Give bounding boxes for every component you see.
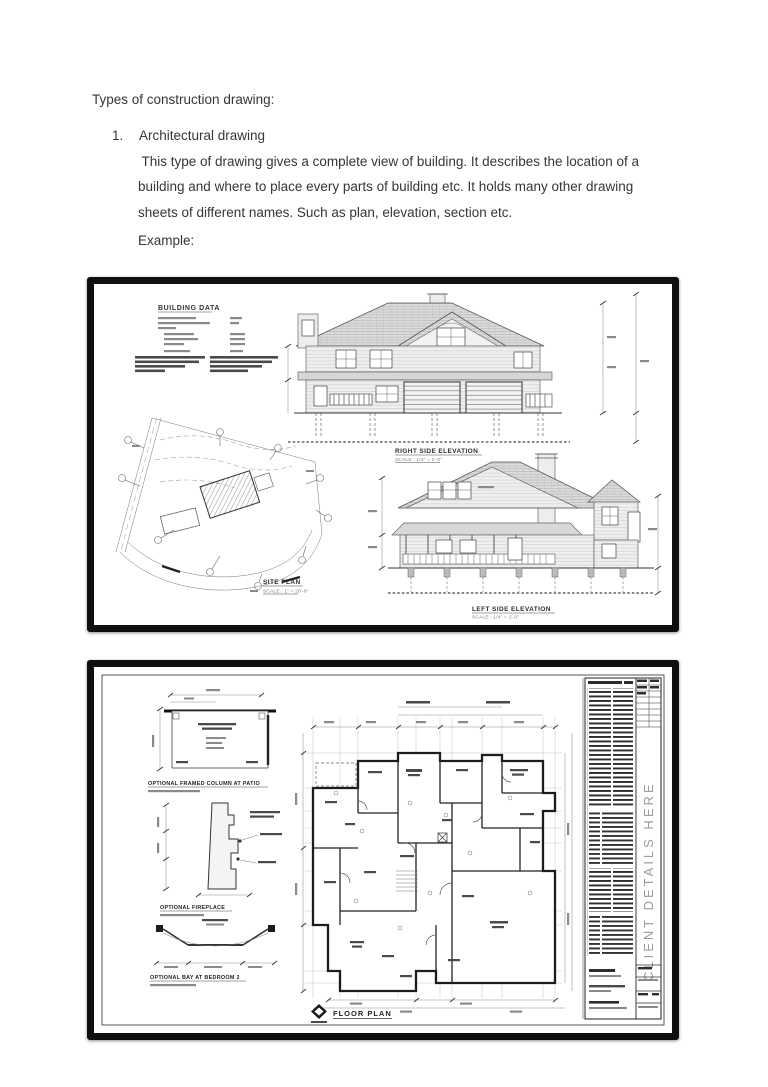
client-details-vertical-text: CLIENT DETAILS HERE <box>641 781 656 981</box>
body-paragraph: This type of drawing gives a complete vi… <box>138 149 678 225</box>
page-title: Types of construction drawing: <box>92 92 274 107</box>
body-line-2: building and where to place every parts … <box>138 174 678 199</box>
fireplace-profile <box>208 803 238 889</box>
porch-door <box>508 538 522 560</box>
floor-plan-figure: OPTIONAL FRAMED COLUMN AT PATIO OPTIONAL… <box>87 660 679 1040</box>
fireplace-detail-label: OPTIONAL FIREPLACE <box>160 905 225 911</box>
bay-window <box>628 512 640 542</box>
list-item-1: 1. Architectural drawing <box>112 128 265 143</box>
body-line-3: sheets of different names. Such as plan,… <box>138 200 678 225</box>
building-data-title: BUILDING DATA <box>158 305 220 312</box>
chimney <box>430 294 445 304</box>
column-detail-drawing: OPTIONAL FRAMED COLUMN AT PATIO <box>148 689 276 792</box>
document-page: { "page": { "heading": "Types of constru… <box>0 0 768 1087</box>
building-footprint <box>200 465 277 518</box>
floor-plan-sheet: OPTIONAL FRAMED COLUMN AT PATIO OPTIONAL… <box>100 673 666 1027</box>
bay-detail-drawing: OPTIONAL BAY AT BEDROOM 2 <box>150 919 277 986</box>
floor-plan-title: FLOOR PLAN <box>311 1004 392 1023</box>
body-line-1: This type of drawing gives a complete vi… <box>138 149 678 174</box>
fireplace-detail-drawing: OPTIONAL FIREPLACE <box>157 803 282 916</box>
entry-door <box>314 386 327 406</box>
porch-roof <box>392 523 582 535</box>
road-centerline <box>121 418 157 552</box>
site-plan-drawing: SITE PLAN SCALE : 1" = 20'-0" <box>116 418 332 595</box>
floor-plan-drawing: FLOOR PLAN <box>295 701 572 1023</box>
left-side-elevation-drawing: LEFT SIDE ELEVATION SCALE : 1/4" = 1'-0" <box>368 454 661 619</box>
right-elevation-scale: SCALE : 1/4" = 1'-0" <box>395 457 442 463</box>
foundation-piers <box>408 568 626 592</box>
left-porch-railing <box>330 394 372 405</box>
site-plan-label: SITE PLAN <box>263 579 301 586</box>
foundation-dashes <box>316 413 543 438</box>
drive-pad <box>160 508 199 534</box>
garage-door-1 <box>404 382 460 413</box>
bay-detail-label: OPTIONAL BAY AT BEDROOM 2 <box>150 975 240 981</box>
list-number: 1. <box>112 128 139 143</box>
right-wing-roof <box>588 480 640 502</box>
right-side-elevation-drawing: RIGHT SIDE ELEVATION SCALE : 1/4" = 1'-0… <box>285 292 649 463</box>
right-elevation-label: RIGHT SIDE ELEVATION <box>395 448 478 455</box>
right-porch-railing <box>526 394 552 407</box>
elevations-drawing: BUILDING DATA <box>100 290 666 619</box>
porch-railing <box>403 554 555 564</box>
left-elevation-label: LEFT SIDE ELEVATION <box>472 606 551 613</box>
example-label: Example: <box>138 233 194 248</box>
road-curve-inner <box>128 530 312 577</box>
building-data-block: BUILDING DATA <box>135 305 278 372</box>
road-arrow-1 <box>162 566 180 572</box>
exterior-walls <box>313 753 555 991</box>
site-plan-scale: SCALE : 1" = 20'-0" <box>263 589 309 595</box>
left-elevation-scale: SCALE : 1/4" = 1'-0" <box>472 615 519 620</box>
patio-outline <box>316 763 356 786</box>
list-item-title: Architectural drawing <box>139 128 265 143</box>
title-block: CLIENT DETAILS HERE <box>583 678 661 1019</box>
column-detail-label: OPTIONAL FRAMED COLUMN AT PATIO <box>148 781 260 787</box>
garage-door-2 <box>466 382 522 413</box>
floor-plan-label: FLOOR PLAN <box>333 1009 392 1018</box>
elevations-figure: BUILDING DATA <box>87 277 679 632</box>
porch-band-roof <box>298 372 552 380</box>
